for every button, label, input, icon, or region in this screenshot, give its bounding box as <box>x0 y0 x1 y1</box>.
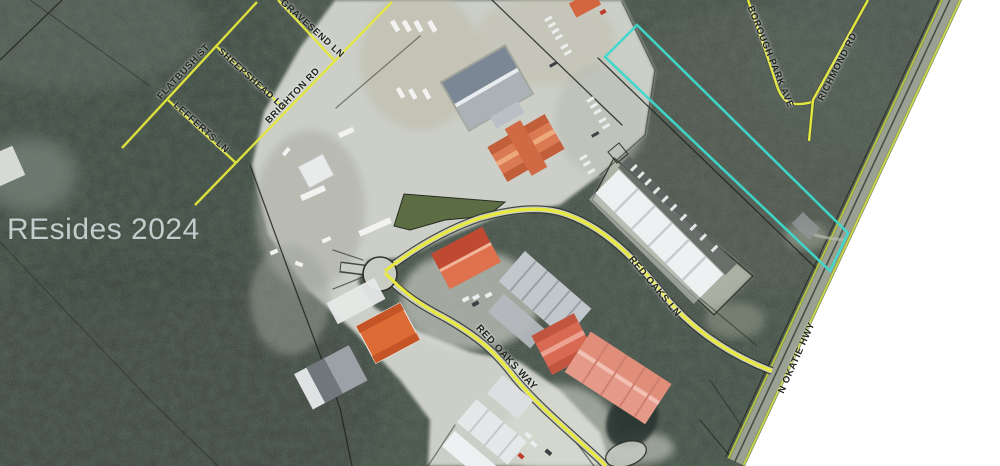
satellite-map-image: GRAVESEND LNFLATBUSH STSHEEPSHEAD LNBRIG… <box>0 0 1000 466</box>
watermark: REsides 2024 <box>7 215 200 245</box>
